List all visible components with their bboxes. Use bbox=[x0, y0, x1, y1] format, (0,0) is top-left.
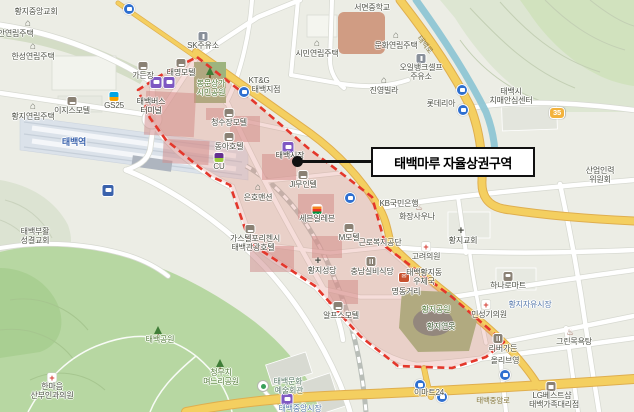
bed-icon[interactable] bbox=[246, 225, 255, 233]
bus-icon[interactable] bbox=[123, 3, 135, 15]
map-label[interactable]: GS25 bbox=[104, 101, 124, 110]
map-label[interactable]: 태백버스 bbox=[137, 97, 166, 106]
map-label[interactable]: 이지스모텔 bbox=[54, 106, 90, 115]
map-label[interactable]: 태백시 bbox=[500, 87, 521, 96]
map-label[interactable]: 태백관광호텔 bbox=[232, 243, 275, 252]
map-label[interactable]: 동아호텔 bbox=[215, 142, 244, 151]
map-label[interactable]: KB국민은행 bbox=[380, 199, 419, 208]
gs-icon[interactable] bbox=[110, 92, 119, 101]
callout-leader-line bbox=[300, 160, 372, 163]
map-label[interactable]: KT&G bbox=[249, 76, 270, 85]
map-label[interactable]: 롯데리아 bbox=[427, 99, 456, 108]
map-label[interactable]: 세븐일레븐 bbox=[299, 214, 335, 223]
map-label[interactable]: 시민공원 bbox=[197, 88, 226, 97]
map-label[interactable]: 황지성당 bbox=[308, 266, 337, 275]
map-label[interactable]: 황지자유시장 bbox=[509, 300, 552, 309]
home-icon[interactable] bbox=[29, 43, 38, 51]
map-label[interactable]: 청무치 bbox=[210, 368, 231, 377]
map-label[interactable]: 성결교회 bbox=[21, 236, 50, 245]
map-label[interactable]: 태백중앙로 bbox=[476, 396, 510, 405]
bed-icon[interactable] bbox=[177, 59, 186, 67]
map-label[interactable]: 태백문화 bbox=[274, 377, 303, 386]
map-label[interactable]: 서면중학교 bbox=[354, 3, 390, 12]
bed-icon[interactable] bbox=[68, 97, 77, 105]
map-label[interactable]: 산부인과의원 bbox=[31, 391, 74, 400]
map-label[interactable]: JI무인텔 bbox=[289, 180, 316, 189]
bed-icon[interactable] bbox=[225, 109, 234, 117]
pin-icon[interactable] bbox=[257, 380, 269, 392]
map-label[interactable]: 가스텔포리첸시 bbox=[230, 234, 280, 243]
home-icon[interactable] bbox=[254, 184, 263, 192]
map-label[interactable]: 터미널 bbox=[140, 106, 161, 115]
map-label[interactable]: 태백황지동 bbox=[406, 268, 442, 277]
map-label[interactable]: 황지연립주택 bbox=[12, 112, 55, 121]
tree-icon[interactable] bbox=[206, 67, 214, 75]
map-label[interactable]: 명동거리 bbox=[392, 287, 421, 296]
map-label[interactable]: 알프스모텔 bbox=[323, 311, 359, 320]
map-label[interactable]: 청수장모텔 bbox=[211, 118, 247, 127]
cart-icon[interactable] bbox=[504, 272, 513, 281]
church-icon[interactable] bbox=[456, 226, 466, 236]
map-label[interactable]: 가든장 bbox=[132, 71, 153, 80]
map-label[interactable]: 태명모텔 bbox=[167, 68, 196, 77]
bus-icon[interactable] bbox=[456, 84, 468, 96]
sauna-icon[interactable] bbox=[565, 327, 575, 337]
map-label[interactable]: 위원회 bbox=[589, 175, 610, 184]
bed-icon[interactable] bbox=[345, 224, 354, 232]
term-icon[interactable] bbox=[163, 76, 176, 89]
district-callout-label: 태백마루 자율상권구역 bbox=[371, 147, 535, 177]
home-icon[interactable] bbox=[24, 20, 33, 28]
map-label[interactable]: 황지연못 bbox=[427, 322, 456, 331]
tree-icon[interactable] bbox=[216, 359, 224, 367]
map-label[interactable]: 태백중앙시장 bbox=[279, 404, 322, 412]
bus-icon[interactable] bbox=[457, 104, 469, 116]
map-label[interactable]: 주유소 bbox=[410, 72, 431, 81]
map-label[interactable]: 하나로마트 bbox=[490, 281, 526, 290]
map-label[interactable]: 오일뱅크셀프 bbox=[400, 63, 443, 72]
map-label[interactable]: 화장사우나 bbox=[399, 212, 435, 221]
map-label[interactable]: 충남실비식당 bbox=[351, 267, 394, 276]
map-label[interactable]: 은호맨션 bbox=[244, 193, 273, 202]
map-label[interactable]: SK주유소 bbox=[187, 41, 219, 50]
map-label[interactable]: 태백가족대리점 bbox=[529, 400, 579, 409]
map-label[interactable]: 태백지점 bbox=[252, 85, 281, 94]
crossr-icon[interactable] bbox=[422, 242, 431, 251]
map-label[interactable]: 산업인력 bbox=[586, 166, 615, 175]
store-icon[interactable] bbox=[547, 382, 556, 391]
map-label[interactable]: LG베스트샵 bbox=[533, 391, 572, 400]
map-label[interactable]: 고려의원 bbox=[412, 252, 441, 261]
map-label[interactable]: 예술회관 bbox=[275, 386, 304, 395]
bus-icon[interactable] bbox=[499, 369, 511, 381]
map-label[interactable]: 황지중앙교회 bbox=[15, 7, 58, 16]
tree-icon[interactable] bbox=[154, 326, 162, 334]
food-icon[interactable] bbox=[494, 334, 503, 343]
bed-icon[interactable] bbox=[299, 171, 308, 179]
map-canvas[interactable]: 황지중앙교회동안연립주택한성연립주택황지연립주택이지스모텔GS25태백역가든장태… bbox=[0, 0, 634, 412]
map-label[interactable]: M모텔 bbox=[339, 233, 360, 242]
cu-icon[interactable] bbox=[215, 153, 224, 162]
bus-icon[interactable] bbox=[344, 192, 356, 204]
map-label[interactable]: 35 bbox=[549, 107, 565, 119]
food-icon[interactable] bbox=[367, 257, 376, 266]
map-label[interactable]: 우체국 bbox=[413, 277, 434, 286]
map-label[interactable]: 리버가든 bbox=[489, 344, 518, 353]
bus-icon[interactable] bbox=[238, 86, 250, 98]
home-icon[interactable] bbox=[392, 32, 401, 40]
crossr-icon[interactable] bbox=[482, 300, 491, 309]
home-icon[interactable] bbox=[380, 77, 389, 85]
map-label[interactable]: 태백역 bbox=[62, 138, 86, 147]
bed-icon[interactable] bbox=[334, 302, 343, 310]
map-label[interactable]: 황지공원 bbox=[422, 305, 451, 314]
map-label[interactable]: 치매안심센터 bbox=[490, 96, 533, 105]
map-label[interactable]: 민성기의원 bbox=[471, 310, 507, 319]
crossr-icon[interactable] bbox=[48, 373, 57, 382]
map-label[interactable]: 봉문상가 bbox=[197, 79, 226, 88]
map-label[interactable]: 동안연립주택 bbox=[0, 29, 33, 38]
map-label[interactable]: 며느리공원 bbox=[203, 377, 239, 386]
map-label[interactable]: 근로복지공단 bbox=[359, 238, 402, 247]
map-label[interactable]: 태백공원 bbox=[146, 335, 175, 344]
train-icon[interactable] bbox=[102, 184, 115, 197]
map-label[interactable]: 문화연립주택 bbox=[375, 41, 418, 50]
map-label[interactable]: 진영빌라 bbox=[370, 86, 399, 95]
church-icon[interactable] bbox=[313, 256, 323, 266]
map-label[interactable]: 올리브영 bbox=[491, 356, 520, 365]
home-icon[interactable] bbox=[313, 40, 322, 48]
gas-icon[interactable] bbox=[417, 54, 426, 63]
map-label[interactable]: 한성연립주택 bbox=[12, 52, 55, 61]
bed-icon[interactable] bbox=[139, 62, 148, 70]
gas-icon[interactable] bbox=[199, 32, 208, 41]
map-label[interactable]: 황지교회 bbox=[449, 236, 478, 245]
bed-icon[interactable] bbox=[225, 133, 234, 141]
map-label[interactable]: 이마트24 bbox=[414, 388, 444, 397]
map-label[interactable]: 시민연립주택 bbox=[296, 49, 339, 58]
map-label[interactable]: CU bbox=[213, 162, 224, 171]
sev-icon[interactable] bbox=[313, 205, 322, 214]
map-label[interactable]: 그린목욕탕 bbox=[556, 337, 592, 346]
home-icon[interactable] bbox=[29, 103, 38, 111]
map-label[interactable]: 태백부활 bbox=[21, 227, 50, 236]
map-label[interactable]: 한마음 bbox=[41, 382, 62, 391]
